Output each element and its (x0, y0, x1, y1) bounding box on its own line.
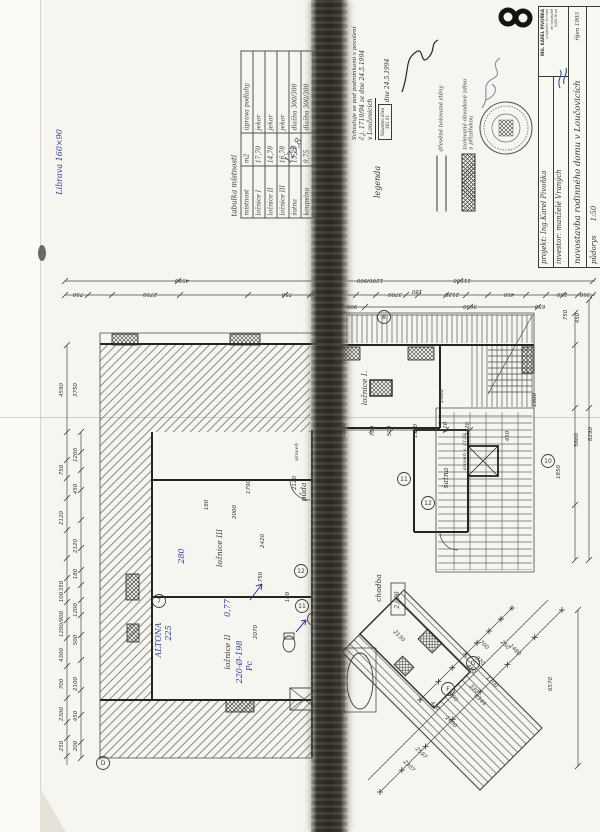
svg-text:5600: 5600 (574, 433, 580, 447)
svg-text:2750: 2750 (143, 291, 157, 297)
scanned-floor-plan-page: { "page": {"number_mark": "8"}, "notes":… (0, 0, 600, 832)
svg-text:ALTONA: ALTONA (154, 622, 163, 658)
svg-text:450: 450 (73, 483, 79, 494)
svg-text:450: 450 (73, 710, 79, 721)
svg-text:180: 180 (204, 499, 210, 510)
svg-text:úroveň: úroveň (293, 443, 300, 461)
svg-text:0,77: 0,77 (223, 598, 232, 617)
svg-text:8: 8 (382, 314, 386, 321)
svg-text:220-Ø-198: 220-Ø-198 (235, 641, 244, 685)
svg-text:1200: 1200 (73, 448, 79, 462)
edge-blot (38, 245, 46, 261)
svg-text:2307: 2307 (402, 759, 416, 773)
svg-text:1790: 1790 (246, 480, 252, 494)
pen-signature (402, 40, 438, 92)
svg-text:350: 350 (579, 291, 590, 297)
svg-text:280: 280 (177, 548, 186, 564)
svg-text:1550: 1550 (413, 424, 419, 438)
svg-text:úroveň v. 2120: úroveň v. 2120 (461, 433, 468, 471)
svg-text:2597: 2597 (414, 746, 428, 760)
svg-text:12: 12 (424, 500, 432, 507)
svg-text:ložnice III: ložnice III (215, 528, 224, 567)
svg-text:2120: 2120 (59, 511, 65, 525)
svg-text:2120: 2120 (73, 539, 79, 553)
svg-text:123,8: 123,8 (283, 136, 305, 165)
svg-text:250: 250 (556, 291, 567, 297)
svg-text:ložnice I.: ložnice I. (360, 371, 369, 405)
svg-text:2420: 2420 (260, 534, 266, 548)
svg-text:700: 700 (59, 678, 65, 689)
svg-text:F: F (446, 686, 450, 693)
svg-text:4590: 4590 (175, 277, 189, 283)
svg-text:4590: 4590 (59, 383, 65, 397)
svg-text:500: 500 (73, 634, 79, 645)
svg-text:2,690: 2,690 (394, 591, 401, 609)
svg-text:200: 200 (73, 740, 79, 751)
svg-text:6570: 6570 (548, 677, 554, 691)
svg-text:450: 450 (505, 430, 511, 441)
svg-text:2000: 2000 (232, 505, 238, 519)
svg-text:350: 350 (59, 580, 65, 591)
svg-text:450: 450 (575, 312, 581, 323)
svg-text:650: 650 (534, 303, 545, 309)
svg-text:G: G (471, 660, 476, 667)
svg-text:180: 180 (73, 568, 79, 579)
svg-text:Librava 160×90: Librava 160×90 (55, 129, 64, 196)
plan-svg: 11500459075027507505001200/9009003700180… (0, 0, 600, 832)
svg-text:1200: 1200 (73, 603, 79, 617)
svg-text:450: 450 (503, 291, 514, 297)
svg-text:750: 750 (281, 291, 292, 297)
svg-text:11: 11 (298, 603, 306, 610)
svg-text:6290: 6290 (588, 427, 594, 441)
svg-text:1200/900: 1200/900 (59, 610, 65, 637)
svg-text:700: 700 (478, 639, 490, 651)
svg-text:1800: 1800 (439, 389, 445, 403)
svg-text:ložnice II: ložnice II (223, 633, 232, 669)
svg-text:2100: 2100 (73, 677, 79, 691)
svg-text:12: 12 (297, 568, 305, 575)
round-seal (480, 102, 532, 154)
svg-text:750: 750 (563, 309, 569, 320)
svg-text:2120: 2120 (292, 476, 298, 490)
svg-text:chodba: chodba (374, 574, 383, 602)
svg-text:180: 180 (411, 288, 422, 294)
svg-text:šatna: šatna (441, 468, 450, 489)
svg-text:3700: 3700 (388, 291, 402, 297)
svg-text:500: 500 (387, 425, 393, 436)
svg-text:750: 750 (72, 291, 83, 297)
svg-text:11: 11 (400, 476, 408, 483)
svg-text:půda: půda (299, 483, 308, 502)
pencil-signature (482, 58, 500, 108)
svg-text:2300: 2300 (59, 707, 65, 721)
svg-text:1200/900: 1200/900 (356, 277, 383, 283)
svg-text:810: 810 (443, 421, 449, 432)
svg-text:10: 10 (544, 458, 552, 465)
svg-text:D: D (101, 760, 106, 767)
svg-text:1850: 1850 (556, 465, 562, 479)
svg-text:250: 250 (499, 639, 511, 651)
svg-text:1800: 1800 (532, 393, 538, 407)
svg-text:100: 100 (59, 591, 65, 602)
svg-text:2120: 2120 (445, 291, 459, 297)
svg-text:11500: 11500 (453, 277, 471, 283)
page-number-mark (501, 10, 530, 25)
svg-text:250: 250 (59, 740, 65, 751)
svg-text:3650: 3650 (463, 303, 477, 309)
svg-text:225: 225 (164, 625, 173, 641)
svg-text:2070: 2070 (253, 625, 259, 639)
blue-signature (559, 68, 567, 88)
svg-text:3750: 3750 (73, 383, 79, 397)
svg-text:4300: 4300 (59, 648, 65, 662)
fold-shadow-band (311, 0, 348, 832)
svg-text:7: 7 (157, 598, 161, 605)
svg-text:Pc: Pc (245, 661, 254, 672)
svg-text:700: 700 (370, 425, 376, 436)
svg-text:750: 750 (59, 464, 65, 475)
chimney (370, 380, 392, 396)
svg-text:180: 180 (285, 591, 291, 602)
svg-text:750: 750 (258, 571, 264, 582)
